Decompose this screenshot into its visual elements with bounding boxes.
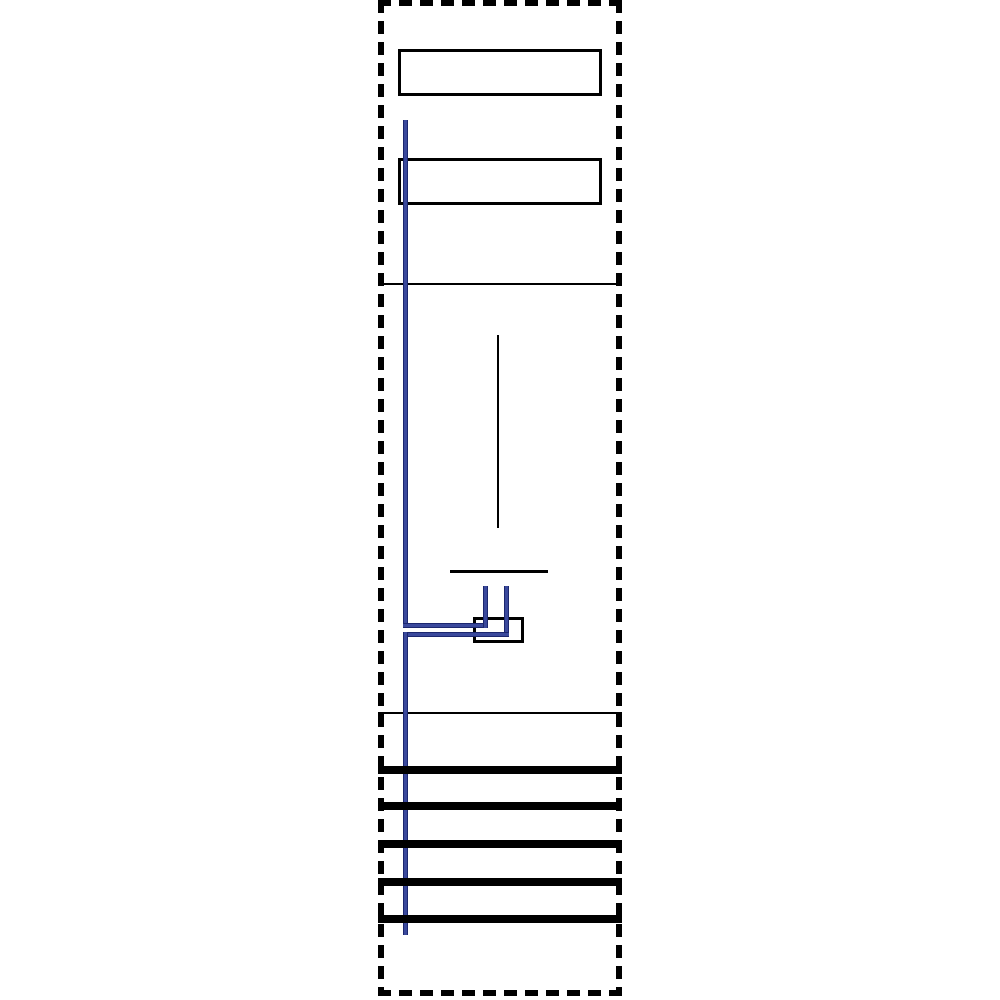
label-box-top <box>398 49 602 96</box>
frame-top-dashed-border <box>378 0 622 6</box>
wire-stub-right-vertical <box>504 586 509 637</box>
busbar-3 <box>378 840 622 848</box>
wire-main-lower-vertical <box>403 632 408 935</box>
frame-bottom-dashed-border <box>378 990 622 996</box>
diagram-stage <box>0 0 1000 1000</box>
meter-base-line <box>450 570 548 573</box>
wire-main-upper-vertical <box>403 120 408 628</box>
wire-stub-left-vertical <box>483 586 488 628</box>
divider-line-upper <box>378 283 622 285</box>
terminal-box <box>473 617 524 643</box>
wire-branch-lower-horizontal <box>403 632 509 637</box>
busbar-5 <box>378 915 622 923</box>
meter-axis-line <box>497 335 499 528</box>
wire-branch-upper-horizontal <box>403 623 488 628</box>
busbar-4 <box>378 878 622 886</box>
busbar-2 <box>378 802 622 810</box>
divider-line-lower <box>378 712 622 714</box>
label-box-middle <box>398 158 602 205</box>
busbar-1 <box>378 766 622 774</box>
